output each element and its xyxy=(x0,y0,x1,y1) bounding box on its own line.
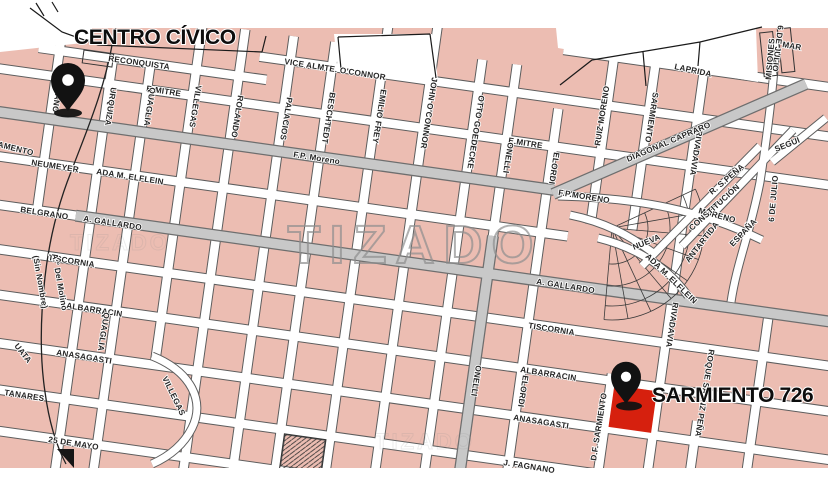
tizado-watermark: TIZADO xyxy=(288,215,543,275)
pin-label-centro-civico: CENTRO CÍVICO xyxy=(74,26,236,49)
tizado-watermark: TIZADO xyxy=(70,230,170,255)
pin-label-sarmiento-726: SARMIENTO 726 xyxy=(652,384,813,407)
city-map: TIZADOTIZADOTIZADO RECONQUISTAVICE ALMTE… xyxy=(0,0,828,493)
pin-shadow xyxy=(616,402,642,411)
map-viewport: TIZADOTIZADOTIZADO RECONQUISTAVICE ALMTE… xyxy=(0,0,828,493)
tizado-watermark: TIZADO xyxy=(375,429,475,454)
